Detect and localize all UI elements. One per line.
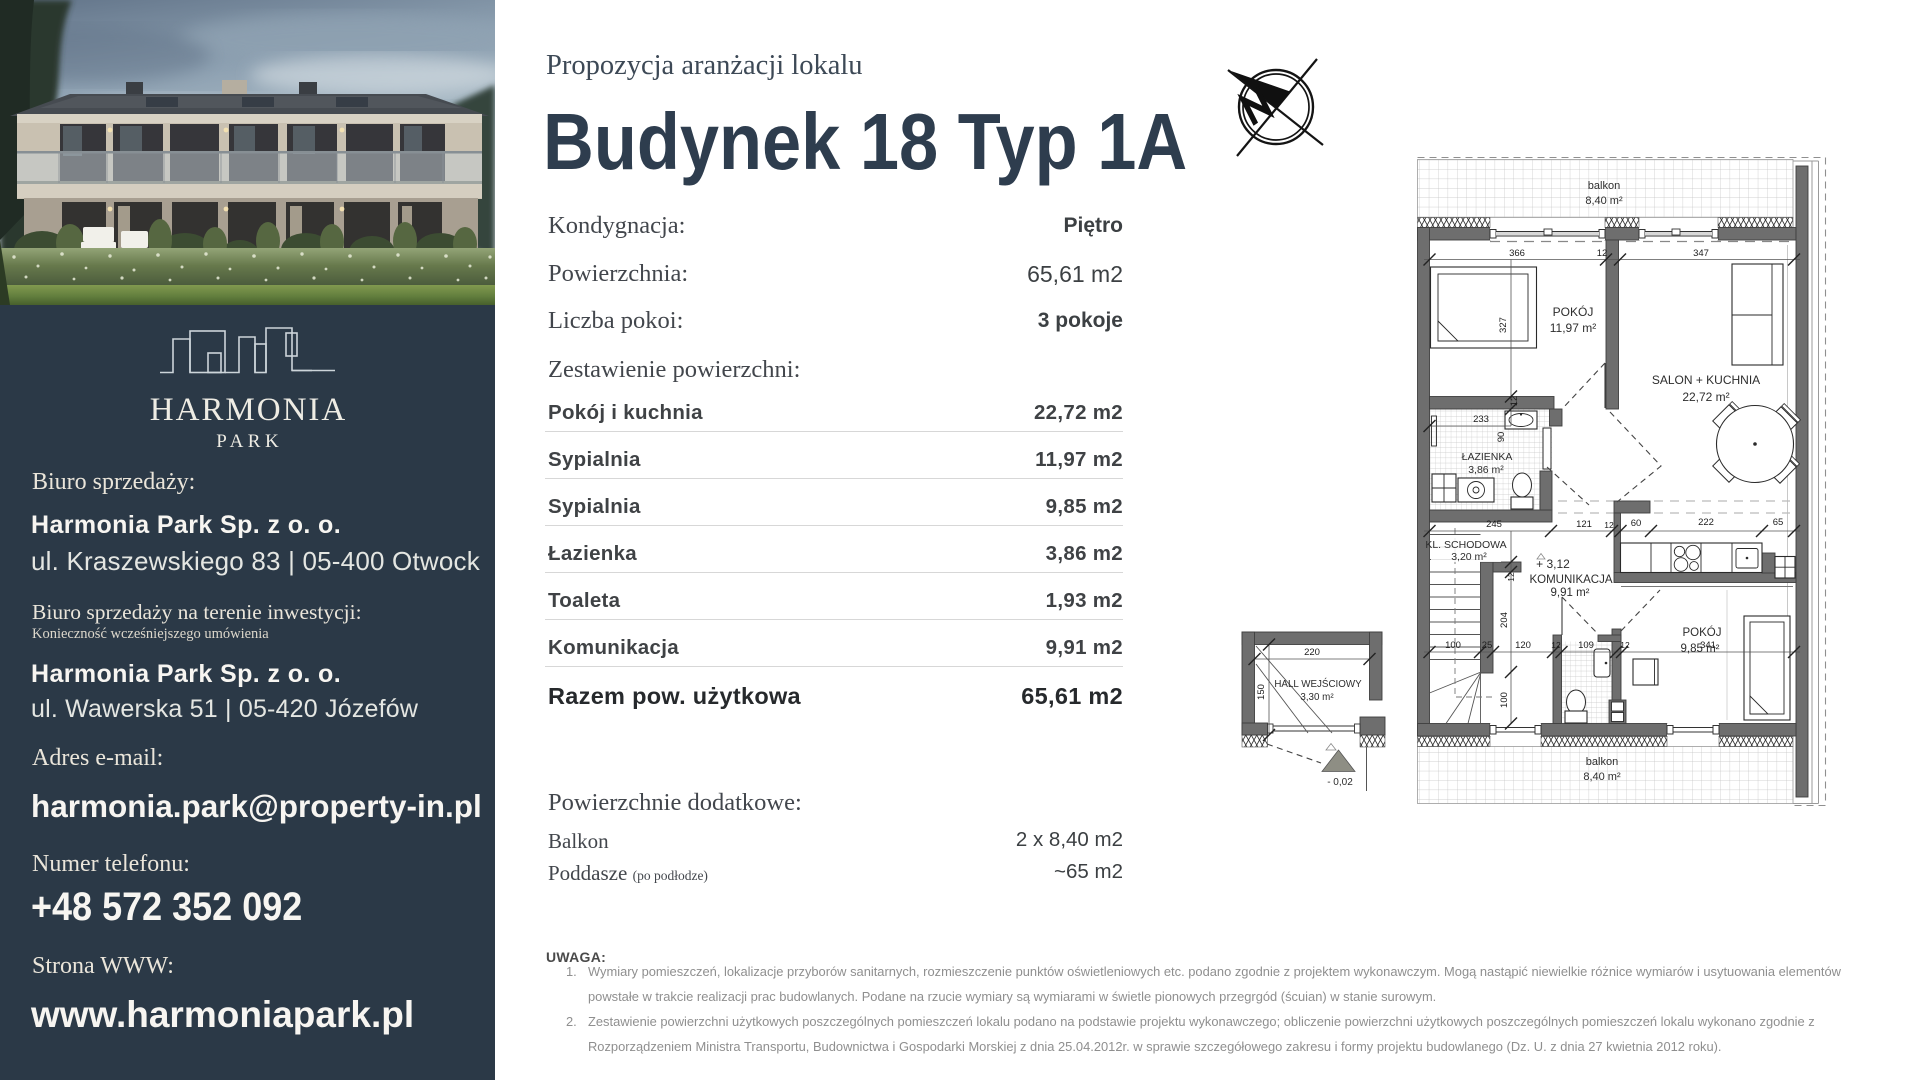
svg-text:ŁAZIENKA: ŁAZIENKA (1462, 451, 1513, 463)
svg-text:8,40 m²: 8,40 m² (1583, 771, 1621, 783)
svg-text:100: 100 (1445, 640, 1461, 651)
svg-text:233: 233 (1473, 414, 1489, 425)
svg-text:9,91 m²: 9,91 m² (1551, 587, 1590, 599)
svg-text:25: 25 (1482, 640, 1493, 651)
svg-text:245: 245 (1486, 519, 1502, 530)
svg-text:balkon: balkon (1588, 180, 1620, 192)
svg-text:SALON + KUCHNIA: SALON + KUCHNIA (1652, 373, 1760, 387)
svg-text:POKÓJ: POKÓJ (1683, 626, 1722, 639)
svg-text:366: 366 (1509, 248, 1525, 259)
svg-text:100: 100 (1499, 692, 1510, 708)
svg-text:HALL WEJŚCIOWY: HALL WEJŚCIOWY (1274, 678, 1362, 690)
svg-text:3,20 m²: 3,20 m² (1451, 551, 1487, 563)
svg-text:- 0,02: - 0,02 (1327, 777, 1353, 788)
svg-text:327: 327 (1498, 317, 1509, 333)
svg-text:120: 120 (1515, 640, 1531, 651)
svg-text:12: 12 (1604, 520, 1614, 530)
svg-text:204: 204 (1499, 612, 1510, 628)
svg-text:220: 220 (1304, 647, 1320, 658)
svg-text:22,72 m²: 22,72 m² (1682, 390, 1729, 404)
svg-text:11,97 m²: 11,97 m² (1550, 321, 1596, 335)
svg-text:121: 121 (1576, 519, 1592, 530)
svg-text:222: 222 (1698, 517, 1714, 528)
svg-text:KL. SCHODOWA: KL. SCHODOWA (1425, 539, 1506, 551)
svg-text:12: 12 (1620, 640, 1630, 650)
svg-text:8,40 m²: 8,40 m² (1585, 195, 1623, 207)
svg-text:90: 90 (1496, 432, 1507, 443)
svg-text:12: 12 (1509, 396, 1520, 407)
svg-text:65: 65 (1773, 517, 1784, 528)
svg-text:POKÓJ: POKÓJ (1553, 304, 1594, 319)
svg-text:12: 12 (1506, 572, 1516, 582)
svg-text:9,85 m²: 9,85 m² (1681, 643, 1720, 655)
svg-text:12: 12 (1597, 248, 1608, 259)
svg-text:3,30 m²: 3,30 m² (1300, 692, 1334, 703)
svg-text:3,86 m²: 3,86 m² (1468, 464, 1504, 476)
svg-text:12: 12 (1551, 640, 1561, 650)
svg-text:150: 150 (1256, 684, 1267, 700)
svg-text:109: 109 (1578, 640, 1594, 651)
svg-text:KOMUNIKACJA: KOMUNIKACJA (1529, 574, 1612, 586)
svg-text:347: 347 (1693, 248, 1709, 259)
svg-text:balkon: balkon (1586, 756, 1618, 768)
svg-text:60: 60 (1631, 518, 1642, 529)
